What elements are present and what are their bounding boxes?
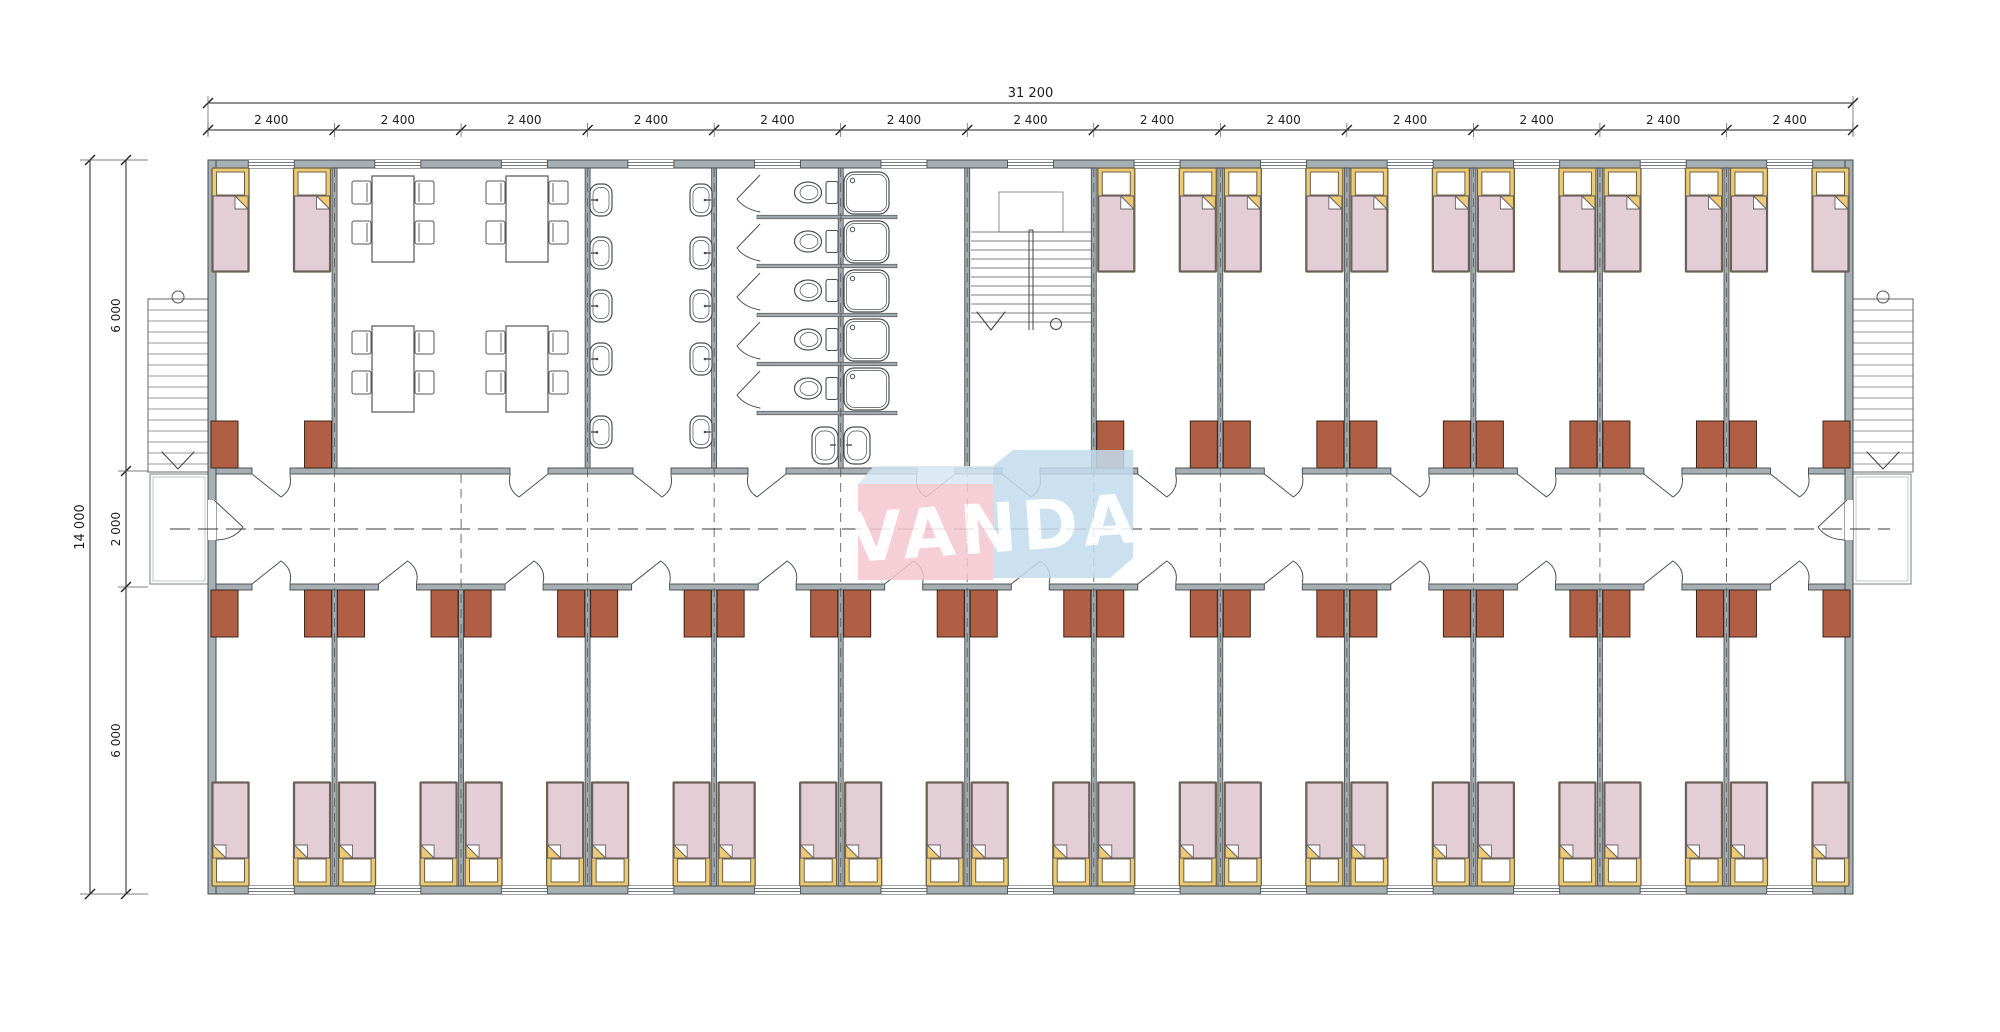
bed <box>718 782 755 886</box>
desk <box>684 590 711 637</box>
desk <box>305 590 332 637</box>
door-swing <box>1264 474 1303 497</box>
external-staircase-left <box>148 291 208 472</box>
left-dimensions: 14 0006 0002 0006 000 <box>73 155 148 899</box>
desk <box>1570 421 1597 468</box>
door-swing <box>1644 561 1683 584</box>
door-swing <box>379 561 418 584</box>
toilet-stall <box>737 371 838 408</box>
dining-table <box>372 326 414 412</box>
desk <box>1443 590 1470 637</box>
desk <box>1729 421 1756 468</box>
desk <box>1350 590 1377 637</box>
bay-dimension: 2 400 <box>1266 113 1300 127</box>
bed <box>971 782 1008 886</box>
window <box>1767 886 1813 894</box>
bed <box>592 782 629 886</box>
desk <box>844 590 871 637</box>
desk <box>211 421 238 468</box>
desk <box>1190 590 1217 637</box>
chair <box>352 221 371 244</box>
bed <box>1812 782 1849 886</box>
door-swing <box>1644 474 1683 497</box>
height-segment-dimension: 6 000 <box>109 298 123 332</box>
bed <box>926 782 963 886</box>
bay-dimension: 2 400 <box>1013 113 1047 127</box>
desk <box>1729 590 1756 637</box>
shower-stall <box>844 368 889 410</box>
bed <box>1053 782 1090 886</box>
sink <box>690 343 712 375</box>
desk <box>1696 590 1723 637</box>
window <box>628 886 674 894</box>
desk <box>1476 590 1503 637</box>
window <box>1008 886 1054 894</box>
door-swing <box>1264 561 1303 584</box>
entrance-door <box>1818 500 1853 540</box>
dining-table <box>506 176 548 262</box>
bed <box>1098 782 1135 886</box>
door-swing <box>747 474 786 497</box>
toilet-room <box>737 175 841 415</box>
bay-dimension: 2 400 <box>1773 113 1807 127</box>
dining-room <box>352 176 568 412</box>
window <box>501 886 547 894</box>
window <box>1134 160 1180 168</box>
toilet-stall <box>737 273 838 310</box>
window <box>375 160 421 168</box>
door-swing <box>1517 474 1556 497</box>
bay-dimension: 2 400 <box>1140 113 1174 127</box>
desk <box>811 590 838 637</box>
bed <box>1179 168 1216 272</box>
washroom <box>590 184 870 464</box>
desk <box>1603 590 1630 637</box>
entrance-door <box>208 500 243 540</box>
desk <box>1570 590 1597 637</box>
bay-dimension: 2 400 <box>254 113 288 127</box>
desk <box>1823 590 1850 637</box>
bed <box>1477 782 1514 886</box>
bed <box>1224 782 1261 886</box>
desk <box>305 421 332 468</box>
bed <box>1685 782 1722 886</box>
door-swing <box>758 561 797 584</box>
chair <box>486 221 505 244</box>
sink <box>844 427 870 464</box>
sink <box>690 290 712 322</box>
door-swing <box>1770 474 1809 497</box>
sink <box>690 416 712 448</box>
shower-stall <box>844 221 889 263</box>
door-swing <box>1391 561 1430 584</box>
sink <box>590 290 612 322</box>
desk <box>1223 590 1250 637</box>
bed <box>1224 168 1261 272</box>
bed <box>465 782 502 886</box>
toilet-stall <box>737 224 838 261</box>
bed <box>1351 168 1388 272</box>
bay-dimension: 2 400 <box>1646 113 1680 127</box>
watermark-fold <box>858 466 993 484</box>
desk <box>211 590 238 637</box>
sink <box>812 427 838 464</box>
door-swing <box>1517 561 1556 584</box>
bed <box>1477 168 1514 272</box>
sink <box>590 237 612 269</box>
desk <box>1443 421 1470 468</box>
bay-dimension: 2 400 <box>381 113 415 127</box>
dining-table <box>506 326 548 412</box>
window <box>1640 886 1686 894</box>
chair <box>486 371 505 394</box>
bed <box>212 168 249 272</box>
bay-dimension: 2 400 <box>1393 113 1427 127</box>
desk <box>431 590 458 637</box>
shower-stall <box>844 172 889 214</box>
sink <box>590 184 612 216</box>
bed <box>339 782 376 886</box>
chair <box>549 371 568 394</box>
bed <box>420 782 457 886</box>
desk <box>1097 590 1124 637</box>
door-swing <box>252 474 291 497</box>
internal-staircase <box>971 192 1091 330</box>
toilet-stall <box>737 322 838 359</box>
desk <box>1476 421 1503 468</box>
bed <box>800 782 837 886</box>
bed <box>1559 782 1596 886</box>
sink <box>590 343 612 375</box>
chair <box>352 331 371 354</box>
toilet-stall <box>737 175 838 212</box>
height-segment-dimension: 6 000 <box>109 723 123 757</box>
desk <box>464 590 491 637</box>
window <box>1008 160 1054 168</box>
door-swing <box>1391 474 1430 497</box>
chair <box>415 331 434 354</box>
bay-dimension: 2 400 <box>507 113 541 127</box>
door-swing <box>633 474 672 497</box>
window <box>754 886 800 894</box>
window <box>881 160 927 168</box>
bed <box>1098 168 1135 272</box>
desk <box>937 590 964 637</box>
top-dimensions: 31 2002 4002 4002 4002 4002 4002 4002 40… <box>203 86 1858 137</box>
desk <box>1223 421 1250 468</box>
bed <box>212 782 249 886</box>
chair <box>352 371 371 394</box>
chair <box>549 221 568 244</box>
door-swing <box>632 561 671 584</box>
bed <box>1432 782 1469 886</box>
desk <box>591 590 618 637</box>
chair <box>352 181 371 204</box>
height-segment-dimension: 2 000 <box>109 512 123 546</box>
desk <box>1317 421 1344 468</box>
chair <box>486 331 505 354</box>
window <box>248 886 294 894</box>
window <box>1514 160 1560 168</box>
desk <box>1603 421 1630 468</box>
door-swing <box>1770 561 1809 584</box>
desk <box>717 590 744 637</box>
bed <box>547 782 584 886</box>
bed <box>845 782 882 886</box>
door-swing <box>1138 561 1177 584</box>
bed <box>1685 168 1722 272</box>
overall-width-dimension: 31 200 <box>1008 86 1054 101</box>
bed <box>673 782 710 886</box>
shower-room <box>841 172 897 415</box>
door-swing <box>509 474 548 497</box>
external-staircase-right <box>1853 291 1913 472</box>
desk <box>558 590 585 637</box>
vanda-watermark: VANDA <box>847 450 1143 580</box>
window <box>1387 886 1433 894</box>
window <box>375 886 421 894</box>
desk <box>1317 590 1344 637</box>
bed <box>1604 168 1641 272</box>
door-swing <box>505 561 544 584</box>
shower-stall <box>844 319 889 361</box>
bed <box>294 168 331 272</box>
desk <box>1823 421 1850 468</box>
desk <box>1350 421 1377 468</box>
bed <box>1432 168 1469 272</box>
bed <box>1559 168 1596 272</box>
window <box>1514 886 1560 894</box>
bay-dimension: 2 400 <box>760 113 794 127</box>
window <box>881 886 927 894</box>
bay-dimension: 2 400 <box>887 113 921 127</box>
sink <box>690 237 712 269</box>
window <box>501 160 547 168</box>
overall-height-dimension: 14 000 <box>73 504 88 550</box>
bed <box>1179 782 1216 886</box>
chair <box>549 331 568 354</box>
floor-plan-drawing: 31 2002 4002 4002 4002 4002 4002 4002 40… <box>0 0 2000 1032</box>
chair <box>415 181 434 204</box>
sink <box>590 416 612 448</box>
shower-stall <box>844 270 889 312</box>
floor-plan-canvas: 31 2002 4002 4002 4002 4002 4002 4002 40… <box>0 0 2000 1032</box>
chair <box>415 371 434 394</box>
bay-dimension: 2 400 <box>634 113 668 127</box>
window <box>1387 160 1433 168</box>
bed <box>1306 782 1343 886</box>
bed <box>1604 782 1641 886</box>
desk <box>1190 421 1217 468</box>
bed <box>1351 782 1388 886</box>
window <box>1261 160 1307 168</box>
chair <box>486 181 505 204</box>
dining-table <box>372 176 414 262</box>
desk <box>338 590 365 637</box>
window <box>628 160 674 168</box>
window <box>754 160 800 168</box>
bed <box>1812 168 1849 272</box>
desk <box>1064 590 1091 637</box>
bed <box>1730 782 1767 886</box>
window <box>248 160 294 168</box>
bed <box>294 782 331 886</box>
desk <box>1696 421 1723 468</box>
desk <box>970 590 997 637</box>
chair <box>549 181 568 204</box>
bed <box>1306 168 1343 272</box>
chair <box>415 221 434 244</box>
window <box>1640 160 1686 168</box>
door-swing <box>1138 474 1177 497</box>
window <box>1767 160 1813 168</box>
window <box>1261 886 1307 894</box>
door-swing <box>252 561 291 584</box>
window <box>1134 886 1180 894</box>
bed <box>1730 168 1767 272</box>
sink <box>690 184 712 216</box>
bay-dimension: 2 400 <box>1519 113 1553 127</box>
